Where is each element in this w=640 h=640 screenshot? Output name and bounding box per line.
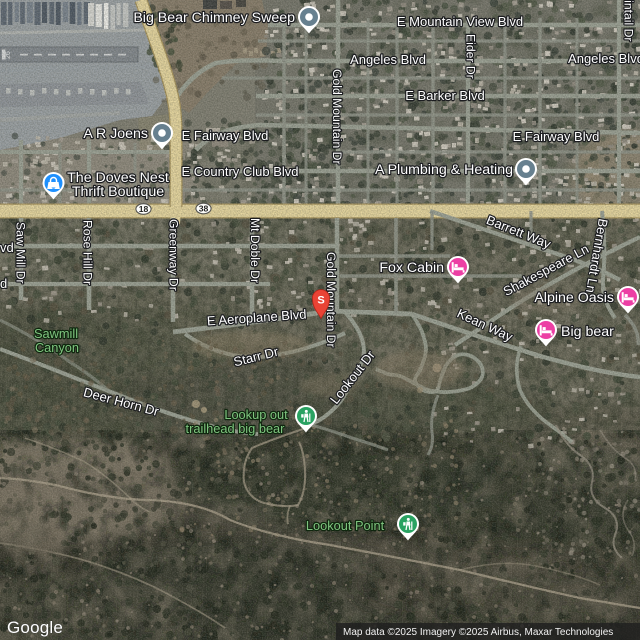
svg-text:E Barker Blvd: E Barker Blvd — [405, 88, 484, 103]
svg-text:Canyon: Canyon — [35, 340, 79, 355]
svg-text:E Mountain View Blvd: E Mountain View Blvd — [397, 14, 523, 29]
svg-text:Sawmill: Sawmill — [34, 326, 78, 341]
svg-text:Map data ©2025 Imagery ©2025 A: Map data ©2025 Imagery ©2025 Airbus, Max… — [343, 627, 613, 638]
svg-text:Big Bear Chimney Sweep: Big Bear Chimney Sweep — [133, 10, 295, 26]
svg-text:Gold Mountain Dr: Gold Mountain Dr — [330, 69, 344, 165]
svg-text:d: d — [0, 276, 7, 291]
svg-text:Angeles Blvd: Angeles Blvd — [568, 51, 640, 66]
svg-text:Angeles Blvd: Angeles Blvd — [350, 52, 426, 67]
svg-text:A R Joens: A R Joens — [83, 126, 148, 142]
svg-text:18: 18 — [139, 204, 149, 214]
svg-text:Pintail Dr: Pintail Dr — [622, 0, 636, 41]
svg-text:vd: vd — [0, 240, 14, 255]
svg-text:Alpine Oasis: Alpine Oasis — [534, 290, 614, 306]
svg-text:Google: Google — [7, 618, 63, 637]
svg-text:E Country Club Blvd: E Country Club Blvd — [181, 164, 298, 179]
svg-text:Lookout Point: Lookout Point — [306, 518, 385, 533]
svg-text:Rose Hill Dr: Rose Hill Dr — [81, 220, 95, 285]
svg-text:38: 38 — [199, 204, 209, 214]
svg-text:A Plumbing & Heating: A Plumbing & Heating — [375, 162, 513, 178]
svg-text:Eider Dr: Eider Dr — [464, 34, 478, 79]
svg-text:Thrift Boutique: Thrift Boutique — [72, 184, 164, 200]
svg-text:Greenway Dr: Greenway Dr — [167, 219, 181, 291]
svg-text:E Fairway Blvd: E Fairway Blvd — [513, 129, 600, 144]
svg-text:Lookup out: Lookup out — [224, 407, 288, 422]
svg-text:E Fairway Blvd: E Fairway Blvd — [182, 128, 269, 143]
svg-text:Mt Doble Dr: Mt Doble Dr — [248, 218, 262, 283]
svg-text:S: S — [317, 295, 324, 307]
svg-text:Saw Mill Dr: Saw Mill Dr — [14, 222, 28, 284]
svg-text:trailhead big bear: trailhead big bear — [186, 421, 286, 436]
svg-text:Big bear: Big bear — [561, 324, 614, 340]
svg-text:Fox Cabin: Fox Cabin — [379, 260, 444, 276]
